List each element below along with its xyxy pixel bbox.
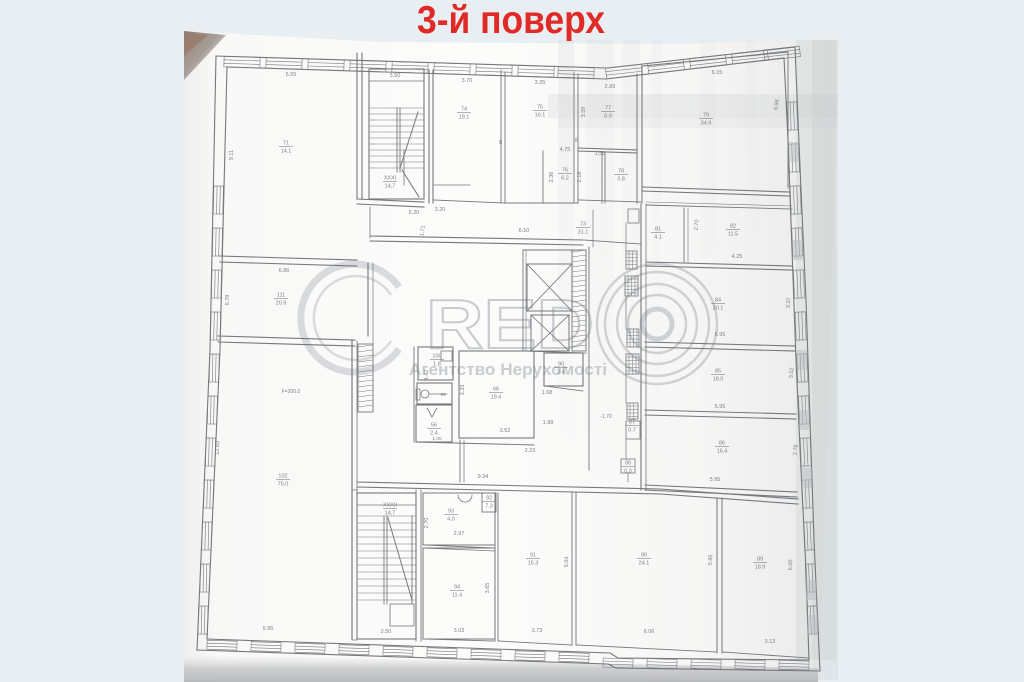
- svg-text:6.06: 6.06: [644, 629, 655, 635]
- svg-text:14,7: 14,7: [385, 511, 396, 517]
- svg-text:94: 94: [454, 585, 460, 591]
- svg-text:73: 73: [580, 222, 586, 228]
- svg-text:5.55: 5.55: [286, 72, 297, 78]
- svg-text:18.9: 18.9: [755, 565, 766, 571]
- svg-text:2.78: 2.78: [792, 444, 799, 455]
- svg-text:1.68: 1.68: [542, 390, 553, 396]
- svg-text:85: 85: [715, 369, 721, 375]
- svg-text:6.95: 6.95: [715, 332, 726, 338]
- svg-text:5.78: 5.78: [225, 295, 231, 306]
- svg-text:66: 66: [493, 387, 499, 393]
- svg-text:3.02: 3.02: [788, 367, 795, 378]
- svg-text:56: 56: [431, 423, 437, 429]
- svg-text:XXXII: XXXII: [383, 503, 398, 509]
- svg-text:39: 39: [574, 137, 579, 143]
- svg-text:3.37: 3.37: [785, 297, 792, 308]
- svg-text:2.36: 2.36: [549, 172, 555, 183]
- svg-text:9.34: 9.34: [478, 474, 489, 480]
- svg-text:19.1: 19.1: [459, 115, 470, 121]
- svg-text:2.23: 2.23: [525, 448, 536, 454]
- svg-text:3.52: 3.52: [500, 428, 511, 434]
- svg-text:16.4: 16.4: [717, 449, 728, 455]
- svg-text:31.1: 31.1: [578, 230, 589, 236]
- svg-text:87: 87: [629, 420, 635, 426]
- svg-text:5.95: 5.95: [708, 554, 715, 565]
- svg-text:4.1: 4.1: [654, 235, 662, 241]
- svg-text:14,7: 14,7: [385, 184, 396, 190]
- svg-text:99: 99: [440, 392, 446, 398]
- svg-text:20.1: 20.1: [713, 306, 724, 312]
- svg-text:3-й поверх: 3-й поверх: [417, 0, 605, 42]
- svg-text:1,58: 1,58: [595, 151, 606, 157]
- svg-text:19.4: 19.4: [491, 395, 502, 401]
- svg-text:5.95: 5.95: [710, 477, 721, 483]
- svg-text:2.50: 2.50: [381, 629, 392, 635]
- svg-text:84: 84: [715, 298, 721, 304]
- svg-text:XXXI: XXXI: [384, 176, 397, 182]
- svg-text:6.2: 6.2: [561, 176, 569, 182]
- svg-text:3.8: 3.8: [617, 177, 625, 183]
- svg-text:11.5: 11.5: [728, 232, 738, 238]
- svg-text:3.33: 3.33: [460, 385, 466, 396]
- svg-text:5.95: 5.95: [263, 626, 274, 632]
- svg-text:11.4: 11.4: [452, 593, 462, 599]
- svg-text:79: 79: [703, 113, 709, 119]
- svg-text:90: 90: [558, 362, 564, 368]
- svg-text:0.7: 0.7: [628, 428, 636, 434]
- svg-text:2.97: 2.97: [454, 531, 465, 537]
- svg-text:6.86: 6.86: [279, 268, 290, 274]
- svg-text:5.95: 5.95: [715, 404, 726, 410]
- svg-text:111: 111: [277, 293, 285, 299]
- svg-text:3.59: 3.59: [581, 107, 587, 118]
- svg-text:3.73: 3.73: [532, 628, 543, 634]
- svg-text:20.9: 20.9: [276, 301, 287, 307]
- svg-text:6.15: 6.15: [712, 70, 723, 76]
- svg-text:3.65: 3.65: [485, 583, 491, 594]
- svg-text:88: 88: [625, 461, 631, 467]
- svg-text:100: 100: [432, 354, 441, 360]
- svg-text:-1.70: -1.70: [600, 414, 612, 420]
- svg-text:3.20: 3.20: [435, 207, 446, 213]
- svg-text:4.0: 4.0: [447, 517, 455, 523]
- svg-text:2.4: 2.4: [430, 431, 438, 437]
- svg-text:14.1: 14.1: [281, 149, 292, 155]
- svg-text:75.0: 75.0: [278, 482, 289, 488]
- svg-text:78: 78: [618, 169, 624, 175]
- svg-text:5.04: 5.04: [564, 557, 570, 568]
- svg-text:6.10: 6.10: [519, 228, 530, 234]
- svg-text:93: 93: [448, 509, 454, 515]
- svg-text:91: 91: [530, 553, 536, 559]
- svg-text:77: 77: [605, 106, 611, 112]
- svg-text:6.00: 6.00: [788, 559, 795, 570]
- svg-text:F=200.0: F=200.0: [282, 389, 301, 395]
- svg-text:3.50: 3.50: [390, 73, 401, 79]
- svg-text:7.3: 7.3: [485, 504, 493, 510]
- svg-text:15.3: 15.3: [528, 561, 539, 567]
- svg-text:1.8: 1.8: [433, 362, 441, 368]
- svg-text:81: 81: [655, 227, 661, 233]
- svg-text:34.9: 34.9: [701, 121, 712, 127]
- svg-text:24.1: 24.1: [639, 561, 650, 567]
- svg-text:4.42: 4.42: [424, 370, 430, 381]
- svg-text:82: 82: [730, 224, 736, 230]
- svg-text:1,00: 1,00: [432, 436, 442, 442]
- svg-text:90: 90: [641, 553, 647, 559]
- svg-text:4.75: 4.75: [560, 147, 571, 153]
- svg-text:74: 74: [461, 107, 467, 113]
- svg-text:5.20: 5.20: [409, 210, 420, 216]
- svg-text:75: 75: [537, 105, 543, 111]
- svg-text:18.0: 18.0: [713, 377, 724, 383]
- svg-text:36: 36: [498, 139, 503, 145]
- svg-text:2.70: 2.70: [424, 518, 430, 529]
- svg-text:76: 76: [562, 168, 568, 174]
- svg-text:86: 86: [719, 441, 725, 447]
- svg-text:0.3: 0.3: [624, 469, 632, 475]
- svg-text:92: 92: [486, 496, 492, 502]
- svg-text:71: 71: [283, 141, 289, 147]
- svg-text:2.4: 2.4: [557, 370, 565, 376]
- svg-text:2.83: 2.83: [605, 84, 616, 90]
- svg-text:9.11: 9.11: [229, 150, 235, 160]
- svg-text:3.70: 3.70: [462, 78, 473, 84]
- svg-text:12.93: 12.93: [215, 441, 222, 455]
- svg-text:3.13: 3.13: [765, 639, 776, 645]
- svg-text:1.98: 1.98: [543, 420, 554, 426]
- svg-text:102: 102: [278, 474, 287, 480]
- svg-text:3.03: 3.03: [454, 628, 465, 634]
- svg-text:16.1: 16.1: [535, 113, 546, 119]
- svg-text:89: 89: [757, 557, 763, 563]
- svg-text:3.25: 3.25: [535, 80, 546, 86]
- svg-text:2.18: 2.18: [577, 172, 583, 183]
- svg-text:8.9: 8.9: [604, 114, 612, 120]
- svg-text:4.25: 4.25: [732, 254, 743, 260]
- svg-text:2.70: 2.70: [693, 219, 700, 230]
